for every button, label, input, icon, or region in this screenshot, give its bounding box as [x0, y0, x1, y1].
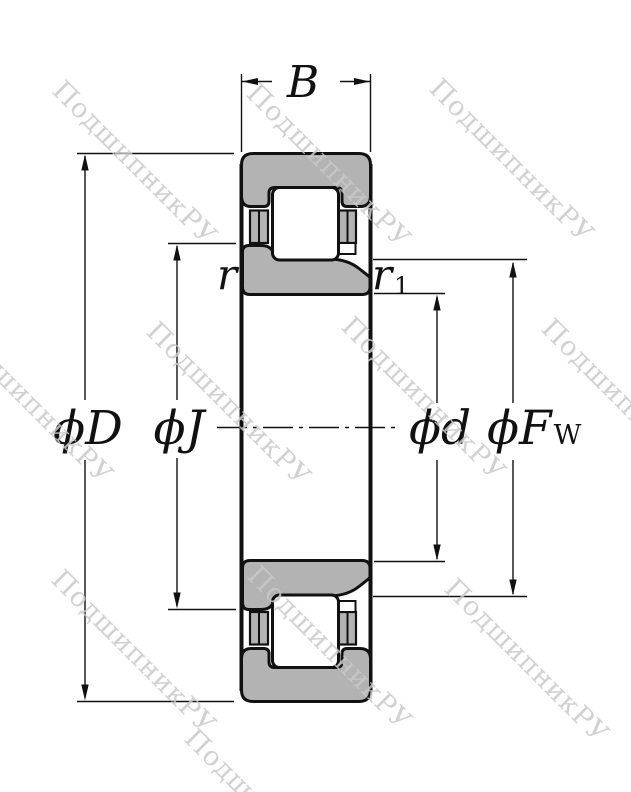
- dim-phiFw-label: ϕFW: [487, 401, 582, 456]
- dim-B-label: B: [286, 57, 319, 108]
- cage-top-left-bar: [250, 211, 268, 244]
- dim-phiJ-label: ϕJ: [154, 401, 207, 456]
- watermark-text: ПодшипникРУ: [438, 573, 615, 750]
- watermark-text: ПодшипникРУ: [46, 75, 223, 252]
- dim-B-arrow-right: [354, 78, 370, 85]
- watermark-text: ПодшипникРУ: [335, 311, 512, 488]
- dim-phid-arrow-up: [433, 295, 440, 311]
- dim-phiFw-arrow-up: [509, 262, 516, 278]
- watermark-text: ПодшипникРУ: [45, 564, 222, 741]
- dim-phiFw-label-sub: W: [554, 420, 582, 451]
- chamfer-r1-base: r: [372, 250, 395, 299]
- dim-phiJ-arrow-down: [173, 593, 180, 609]
- cage-top-right-bar: [338, 211, 357, 255]
- bearing-cross-section-drawing: B ϕD ϕJ ϕd ϕFW r r1: [0, 0, 631, 792]
- chamfer-r1-label: r1: [372, 250, 409, 300]
- watermark-text: ПодшипникРУ: [423, 73, 600, 250]
- chamfer-r1-sub: 1: [394, 272, 409, 300]
- dim-phiJ-arrow-up: [173, 245, 180, 261]
- dim-phiFw-label-base: ϕF: [487, 401, 553, 456]
- dim-phiD-arrow-up: [81, 155, 88, 171]
- chamfer-r-label: r: [217, 250, 240, 299]
- cage-bottom-left-bar: [250, 612, 268, 645]
- dim-phid-arrow-down: [433, 545, 440, 561]
- bearing-drawing-canvas: B ϕD ϕJ ϕd ϕFW r r1: [0, 0, 631, 792]
- watermark-text: ПодшипникРУ: [178, 723, 355, 792]
- dim-phiD-arrow-down: [81, 685, 88, 701]
- roller-top: [273, 188, 339, 261]
- dim-phiFw-arrow-down: [509, 580, 516, 596]
